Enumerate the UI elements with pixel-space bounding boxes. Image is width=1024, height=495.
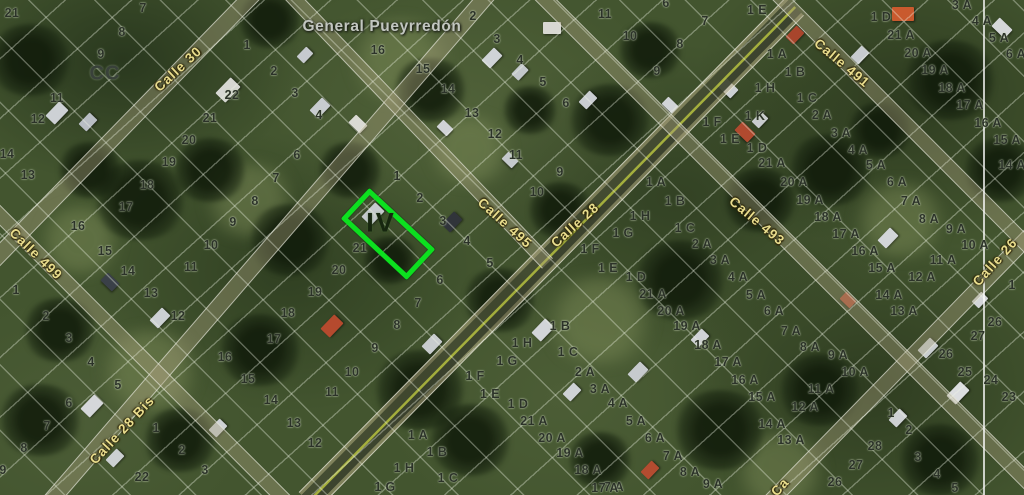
- parcel-label: 16 A: [974, 116, 1002, 130]
- building-roof: [80, 394, 103, 417]
- parcel-label: 22: [225, 88, 240, 102]
- street-label-calle-30: Calle 30: [151, 43, 204, 94]
- parcel-label: 24: [984, 373, 999, 387]
- parcel-label: 25: [958, 365, 973, 379]
- parcel-label: 10 A: [841, 365, 869, 379]
- parcel-label: 12: [171, 309, 186, 323]
- parcel-label: 5: [486, 256, 493, 270]
- street-label-calle-499: Calle 499: [6, 225, 65, 283]
- parcel-label: 11: [325, 385, 339, 399]
- parcel-label: 4 A: [728, 270, 748, 284]
- parcel-label: 18 A: [694, 338, 722, 352]
- parcel-label: 21: [203, 111, 218, 125]
- parcel-label: 15 A: [748, 390, 776, 404]
- parcel-label: 17 A: [591, 481, 619, 495]
- building-roof: [436, 120, 453, 137]
- parcel-label: 28: [868, 439, 883, 453]
- parcel-label: 27: [849, 458, 864, 472]
- parcel-label: 11 A: [808, 382, 835, 396]
- parcel-label: 16: [218, 350, 233, 364]
- parcel-label: 16 A: [851, 244, 879, 258]
- parcel-label: 1 C: [558, 345, 579, 359]
- parcel-label: 8: [393, 318, 400, 332]
- parcel-label: 7 A: [781, 324, 801, 338]
- parcel-label: 7: [43, 419, 50, 433]
- parcel-label: 15: [416, 62, 431, 76]
- parcel-label: 20 A: [538, 431, 566, 445]
- parcel-label: 21 A: [639, 287, 667, 301]
- parcel-label: 1 F: [580, 242, 599, 256]
- parcel-label: 15: [241, 372, 256, 386]
- parcel-label: 1 G: [612, 226, 633, 240]
- parcel-label: 1 D: [747, 141, 768, 155]
- parcel-label: 1 F: [702, 115, 721, 129]
- parcel-label: 7: [701, 14, 708, 28]
- parcel-label: 17 A: [956, 98, 984, 112]
- parcel-label: 2: [416, 191, 423, 205]
- parcel-label: 8: [20, 441, 27, 455]
- parcel-label: 9 A: [703, 477, 723, 491]
- parcel-label: 4 A: [608, 396, 628, 410]
- parcel-label: 13: [287, 416, 302, 430]
- parcel-label: 5: [951, 481, 958, 495]
- parcel-label: 6: [65, 396, 72, 410]
- parcel-label: 1 A: [767, 47, 787, 61]
- parcel-label: 2: [469, 9, 476, 23]
- parcel-label: 14: [264, 393, 279, 407]
- parcel-label: 13: [465, 106, 480, 120]
- parcel-label: 1 H: [512, 336, 533, 350]
- parcel-label: 10: [345, 365, 360, 379]
- parcel-label: 1 F: [465, 369, 484, 383]
- parcel-label: 10: [204, 238, 219, 252]
- parcel-label: 17: [119, 200, 134, 214]
- parcel-label: 18: [281, 306, 296, 320]
- parcel-label: 6: [662, 0, 669, 10]
- building-roof: [149, 307, 170, 328]
- building-roof: [627, 361, 648, 382]
- parcel-label: 14: [441, 82, 456, 96]
- parcel-label: 10: [530, 185, 545, 199]
- parcel-label: 1 B: [785, 65, 806, 79]
- parcel-label: 9: [229, 215, 236, 229]
- parcel-label: 8 A: [919, 212, 939, 226]
- parcel-label: 1: [393, 169, 400, 183]
- parcel-label: 1 H: [394, 461, 415, 475]
- parcel-label: 9: [97, 47, 104, 61]
- parcel-label: 26: [939, 347, 954, 361]
- parcel-label: 9 A: [946, 222, 966, 236]
- parcel-label: 3: [493, 32, 500, 46]
- parcel-label: 4 A: [972, 14, 992, 28]
- parcel-label: 21 A: [758, 156, 786, 170]
- parcel-label: 7: [414, 296, 421, 310]
- parcel-label: 13: [144, 286, 159, 300]
- parcel-label: 11 A: [930, 253, 957, 267]
- parcel-label: 18 A: [574, 463, 602, 477]
- building-roof: [100, 272, 119, 291]
- parcel-label: 27: [971, 329, 986, 343]
- parcel-label: 2: [270, 64, 277, 78]
- street-label-calle-491: Calle 491: [811, 36, 872, 91]
- parcel-label: 9: [371, 341, 378, 355]
- parcel-label: 10 A: [961, 238, 989, 252]
- building-roof: [297, 46, 314, 63]
- parcel-label: 13 A: [777, 433, 805, 447]
- parcel-label: 16: [71, 219, 86, 233]
- parcel-label: 12: [31, 112, 46, 126]
- parcel-label: 13: [21, 168, 36, 182]
- parcel-label: 1 A: [646, 175, 666, 189]
- parcel-label: 9: [653, 64, 660, 78]
- parcel-label: 12 A: [908, 270, 936, 284]
- parcel-label: 4: [315, 108, 322, 122]
- parcel-label: 6 A: [887, 175, 907, 189]
- satellite-map[interactable]: 2178911121413123422212019181716151413126…: [0, 0, 1024, 495]
- block-label-cc: CC: [90, 63, 121, 86]
- parcel-label: 21: [353, 241, 368, 255]
- road-calle-30: [0, 0, 264, 272]
- parcel-label: 7: [139, 1, 146, 15]
- parcel-label: 14 A: [758, 417, 786, 431]
- parcel-label: 4: [516, 53, 523, 67]
- tree-canopy: [425, 404, 515, 476]
- parcel-label: 20 A: [657, 304, 685, 318]
- parcel-label: 12: [488, 127, 503, 141]
- parcel-label: 5: [539, 75, 546, 89]
- parcel-label: 1 G: [374, 480, 395, 494]
- parcel-label: 9: [0, 463, 7, 477]
- parcel-label: 10: [623, 29, 638, 43]
- parcel-label: 9 A: [828, 348, 848, 362]
- parcel-label: 7 A: [901, 194, 921, 208]
- parcel-label: 26: [988, 315, 1003, 329]
- parcel-label: 11: [598, 7, 612, 21]
- parcel-label: 18 A: [938, 81, 966, 95]
- parcel-label: 5 A: [866, 158, 886, 172]
- parcel-label: 2 A: [692, 237, 712, 251]
- parcel-label: 19 A: [921, 63, 949, 77]
- parcel-label: 11: [184, 260, 198, 274]
- parcel-label: 16 A: [731, 373, 759, 387]
- parcel-label: 18 A: [814, 210, 842, 224]
- parcel-label: 5: [114, 378, 121, 392]
- tree-canopy: [90, 160, 190, 240]
- parcel-label: 1 C: [675, 221, 696, 235]
- street-label-general-pueyrredon: General Pueyrredón: [303, 18, 462, 36]
- parcel-label: 7: [272, 171, 279, 185]
- parcel-label: 14: [121, 264, 136, 278]
- parcel-label: 1 H: [630, 209, 651, 223]
- parcel-label: 6: [293, 148, 300, 162]
- parcel-label: 17 A: [714, 355, 742, 369]
- parcel-label: 3 A: [952, 0, 972, 12]
- parcel-label: 1 E: [747, 3, 767, 17]
- parcel-label: 4: [933, 467, 940, 481]
- parcel-label: 1 D: [871, 10, 892, 24]
- parcel-label: 1 A: [408, 428, 428, 442]
- tree-canopy: [565, 432, 635, 488]
- parcel-label: 21 A: [887, 28, 915, 42]
- parcel-label: 2: [42, 309, 49, 323]
- parcel-label: 14 A: [998, 158, 1024, 172]
- street-label-calle-495: Calle 495: [475, 195, 535, 251]
- parcel-label: 9: [556, 165, 563, 179]
- parcel-label: 11: [509, 148, 523, 162]
- parcel-label: 1 E: [480, 387, 500, 401]
- parcel-label: 6 A: [645, 431, 665, 445]
- parcel-label: 5 A: [746, 288, 766, 302]
- parcel-label: 6: [436, 273, 443, 287]
- parcel-label: 12 A: [791, 400, 819, 414]
- parcel-label: 3: [439, 214, 446, 228]
- tree-canopy: [500, 86, 560, 134]
- parcel-label: 1 C: [797, 91, 818, 105]
- parcel-label: 1 K: [745, 109, 766, 123]
- parcel-label: 1 H: [755, 81, 776, 95]
- building-roof: [578, 90, 597, 109]
- parcel-label: 2: [905, 423, 912, 437]
- parcel-label: 5 A: [626, 414, 646, 428]
- parcel-label: 8: [251, 194, 258, 208]
- parcel-label: 1 D: [508, 397, 529, 411]
- parcel-label: 7 A: [663, 449, 683, 463]
- parcel-label: 4: [463, 234, 470, 248]
- parcel-label: 15 A: [993, 133, 1021, 147]
- parcel-label: 16: [371, 43, 386, 57]
- parcel-label: 21 A: [520, 414, 548, 428]
- parcel-label: 20 A: [904, 46, 932, 60]
- building-roof: [892, 7, 914, 21]
- parcel-label: 1: [1008, 278, 1015, 292]
- parcel-label: 1 D: [626, 270, 647, 284]
- parcel-label: 2 A: [812, 108, 832, 122]
- parcel-label: 15: [98, 244, 113, 258]
- parcel-label: 2 A: [575, 365, 595, 379]
- building-roof: [78, 112, 97, 131]
- building-roof: [877, 227, 898, 248]
- parcel-label: 14: [0, 147, 14, 161]
- parcel-label: 3 A: [710, 253, 730, 267]
- parcel-label: 6: [562, 96, 569, 110]
- parcel-label: 1 G: [496, 354, 517, 368]
- parcel-label: 20: [182, 133, 197, 147]
- parcel-label: 8 A: [800, 340, 820, 354]
- parcel-label: 3 A: [831, 126, 851, 140]
- parcel-label: 1: [152, 421, 159, 435]
- parcel-label: 3: [201, 463, 208, 477]
- parcel-label: 3 A: [590, 382, 610, 396]
- building-roof: [562, 382, 581, 401]
- building-roof: [640, 460, 659, 479]
- parcel-label: 17: [267, 332, 282, 346]
- parcel-label: 8: [676, 37, 683, 51]
- parcel-label: 1 C: [438, 471, 459, 485]
- highlighted-parcel-label: IV: [366, 208, 396, 239]
- tree-canopy: [170, 138, 250, 202]
- parcel-label: 20: [332, 263, 347, 277]
- parcel-label: 20 A: [780, 175, 808, 189]
- parcel-label: 4 A: [848, 143, 868, 157]
- parcel-label: 21: [5, 6, 20, 20]
- parcel-label: 22: [135, 470, 150, 484]
- road-calle-499: [0, 198, 293, 495]
- parcel-label: 15 A: [868, 261, 896, 275]
- parcel-label: 19: [308, 285, 323, 299]
- parcel-label: 3: [914, 450, 921, 464]
- parcel-label: 17 A: [832, 227, 860, 241]
- parcel-label: 19 A: [556, 446, 584, 460]
- parcel-label: 8 A: [680, 465, 700, 479]
- tree-canopy: [0, 24, 75, 96]
- parcel-label: 1 B: [665, 194, 686, 208]
- parcel-label: 3: [65, 331, 72, 345]
- parcel-label: 4: [87, 355, 94, 369]
- parcel-label: 3: [291, 86, 298, 100]
- parcel-label: 5 A: [989, 31, 1009, 45]
- parcel-label: 23: [1002, 390, 1017, 404]
- parcel-label: 19 A: [673, 319, 701, 333]
- parcel-label: 1 E: [720, 132, 740, 146]
- parcel-label: 2: [178, 443, 185, 457]
- parcel-label: 6 A: [764, 304, 784, 318]
- parcel-label: 19 A: [796, 193, 824, 207]
- parcel-label: 1 B: [427, 445, 448, 459]
- parcel-label: 14 A: [875, 288, 903, 302]
- parcel-label: 13 A: [890, 304, 918, 318]
- parcel-label: 1: [243, 38, 250, 52]
- parcel-label: 26: [828, 475, 843, 489]
- building-roof: [481, 47, 502, 68]
- parcel-label: 1: [887, 406, 894, 420]
- parcel-label: 1 E: [598, 261, 618, 275]
- building-roof: [320, 314, 343, 337]
- parcel-label: 19: [162, 155, 177, 169]
- parcel-label: 12: [308, 436, 323, 450]
- parcel-label: 6 A: [1006, 47, 1024, 61]
- parcel-label: 8: [118, 25, 125, 39]
- parcel-label: 1: [12, 283, 19, 297]
- parcel-label: 11: [50, 91, 64, 105]
- parcel-label: 1 B: [550, 319, 571, 333]
- parcel-label: 18: [140, 178, 155, 192]
